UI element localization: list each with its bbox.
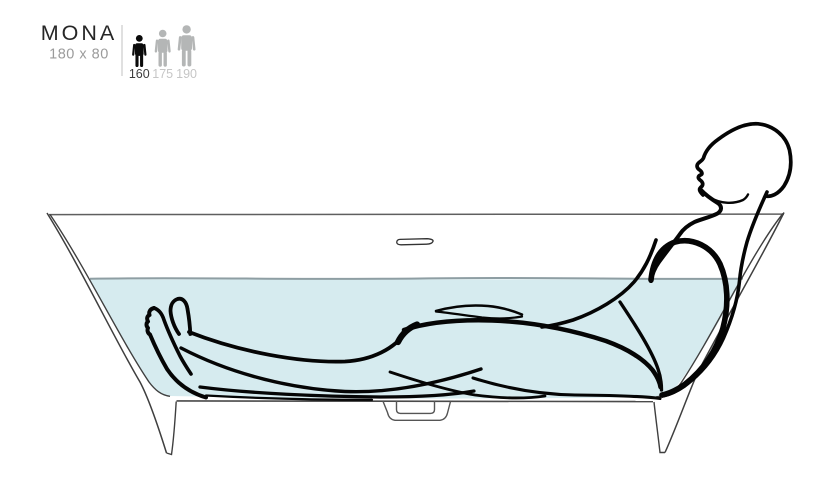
svg-text:175: 175 [152,67,173,81]
svg-text:190: 190 [176,67,197,81]
svg-text:MONA: MONA [41,21,118,45]
svg-text:160: 160 [129,67,150,81]
svg-text:180 x 80: 180 x 80 [49,47,109,63]
